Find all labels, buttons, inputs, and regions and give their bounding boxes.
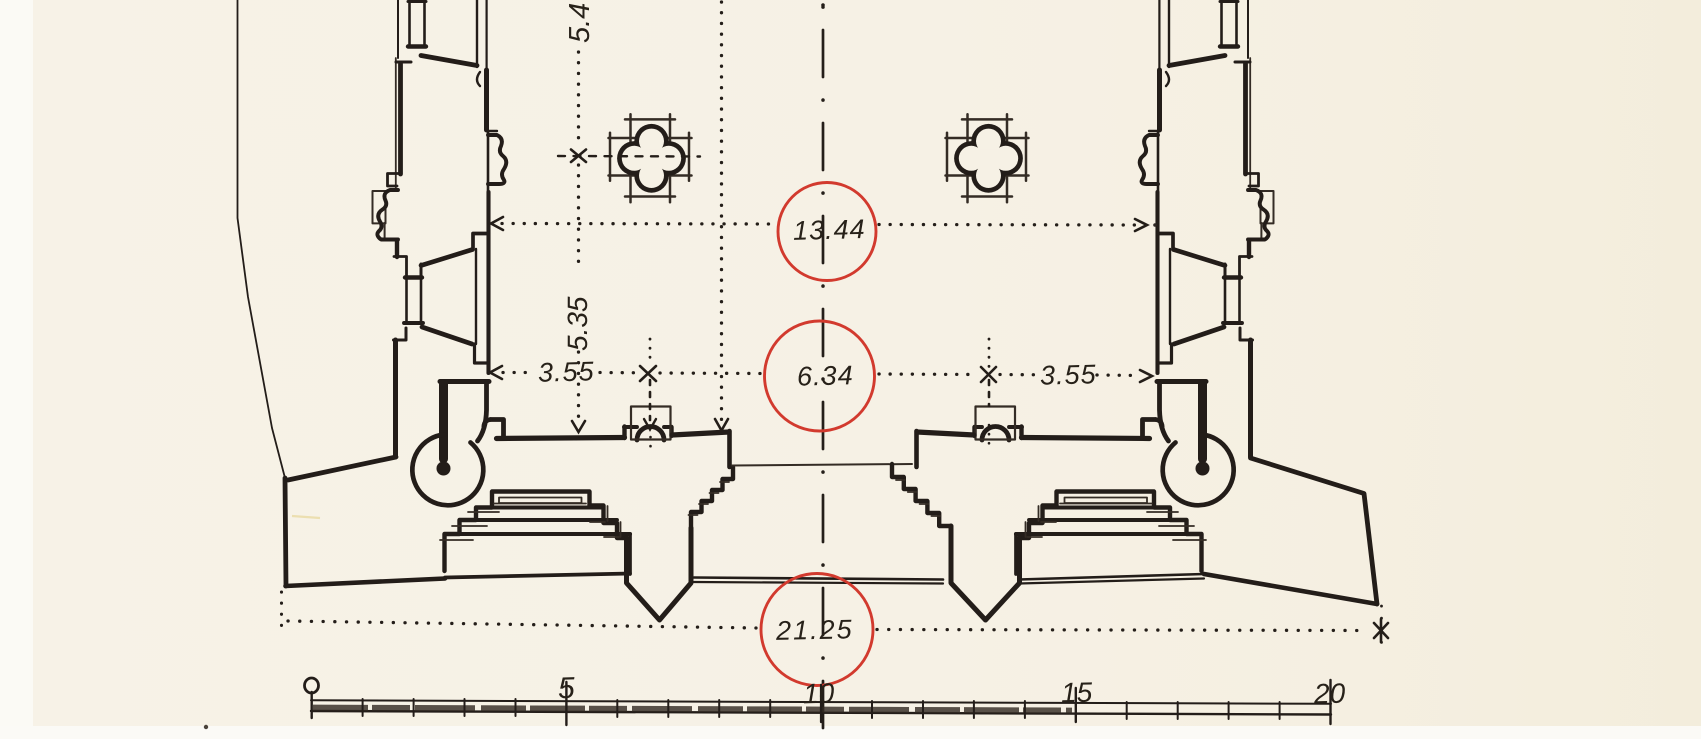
- svg-text:21.25: 21.25: [775, 614, 854, 646]
- svg-text:15: 15: [1061, 677, 1093, 709]
- svg-text:6.34: 6.34: [797, 360, 854, 391]
- svg-text:3.55: 3.55: [538, 356, 595, 387]
- svg-text:10: 10: [803, 678, 835, 710]
- svg-text:5.35: 5.35: [562, 296, 593, 351]
- svg-text:20: 20: [1313, 678, 1346, 710]
- svg-text:13.44: 13.44: [793, 214, 866, 246]
- svg-text:3.55: 3.55: [1040, 359, 1097, 390]
- svg-text:5: 5: [558, 672, 576, 705]
- svg-text:5.4: 5.4: [564, 3, 596, 43]
